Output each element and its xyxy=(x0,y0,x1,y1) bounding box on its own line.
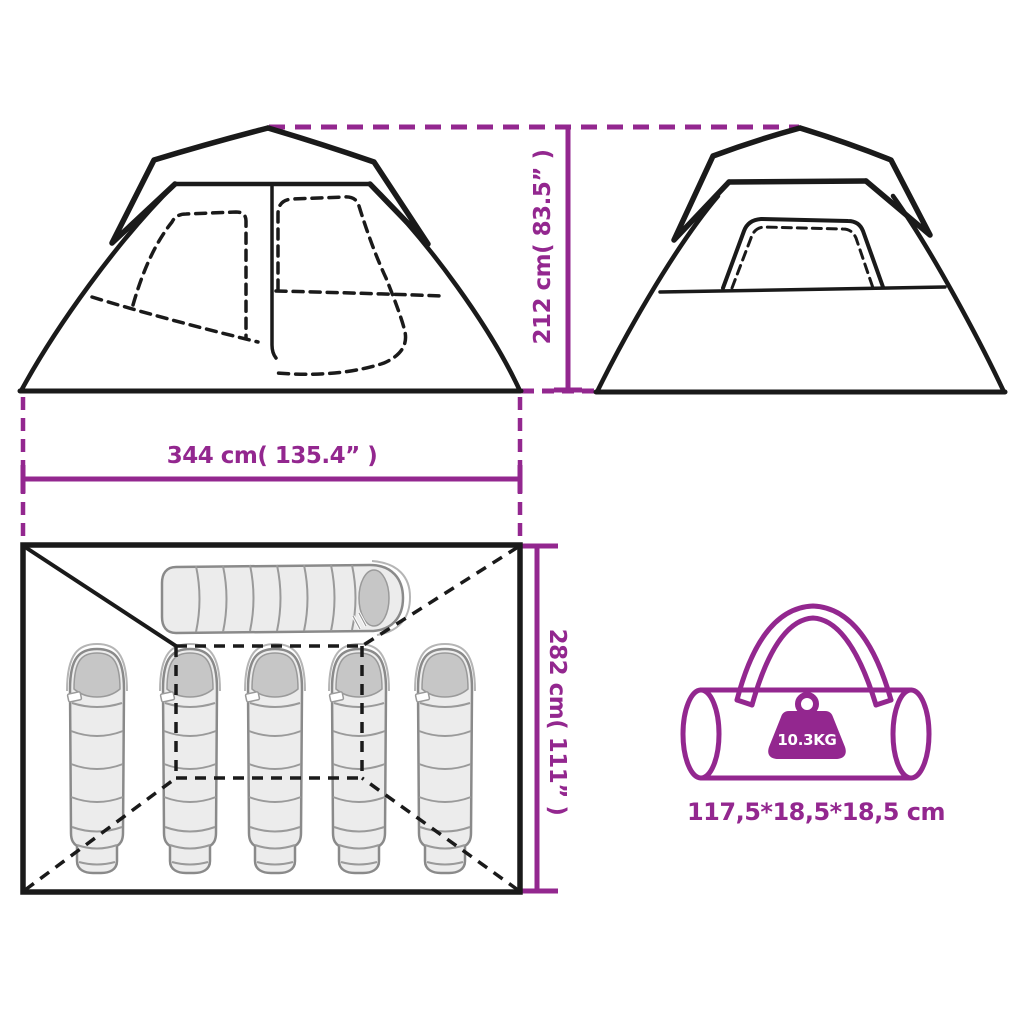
floor-solid-diagonal xyxy=(25,547,176,646)
side-left-wall xyxy=(597,196,718,392)
front-left-wall xyxy=(21,184,175,391)
depth-dimension-label: 282 cm( 111” ) xyxy=(544,629,570,816)
sleeping-bag-icon xyxy=(415,644,475,873)
side-seam-line xyxy=(660,287,945,292)
tent-front-view-icon xyxy=(20,128,521,391)
tent-dimension-diagram: 344 cm( 135.4” ) 212 cm( 83.5” ) 282 cm(… xyxy=(0,0,1024,1024)
side-right-wall xyxy=(893,196,1004,392)
side-roof-cap xyxy=(674,128,930,240)
width-dimension-line xyxy=(23,397,520,543)
carry-bag-icon xyxy=(683,606,929,778)
sleeping-bag-upright-icons xyxy=(67,644,475,873)
diagram-svg xyxy=(0,0,1024,1024)
sleeping-bag-icon xyxy=(245,644,305,873)
sleeping-bag-icon xyxy=(160,644,220,873)
front-right-wall xyxy=(370,184,520,391)
width-dimension-label: 344 cm( 135.4” ) xyxy=(167,443,378,469)
weight-value-label: 10.3KG xyxy=(777,731,836,749)
sleeping-bag-icon xyxy=(329,644,389,873)
width-extension-dashed-lines xyxy=(23,397,520,543)
tent-floor-plan-icon xyxy=(23,545,520,892)
tent-side-view-icon xyxy=(596,128,1005,392)
side-window-inner-dashed xyxy=(732,227,873,288)
height-dimension-label: 212 cm( 83.5” ) xyxy=(530,149,556,344)
sleeping-bag-icon xyxy=(67,644,127,873)
front-door-dashed-outline xyxy=(276,197,443,374)
front-door-divider xyxy=(272,184,276,358)
packed-size-label: 117,5*18,5*18,5 cm xyxy=(687,798,945,826)
sleeping-bag-horizontal-icon xyxy=(162,561,410,635)
